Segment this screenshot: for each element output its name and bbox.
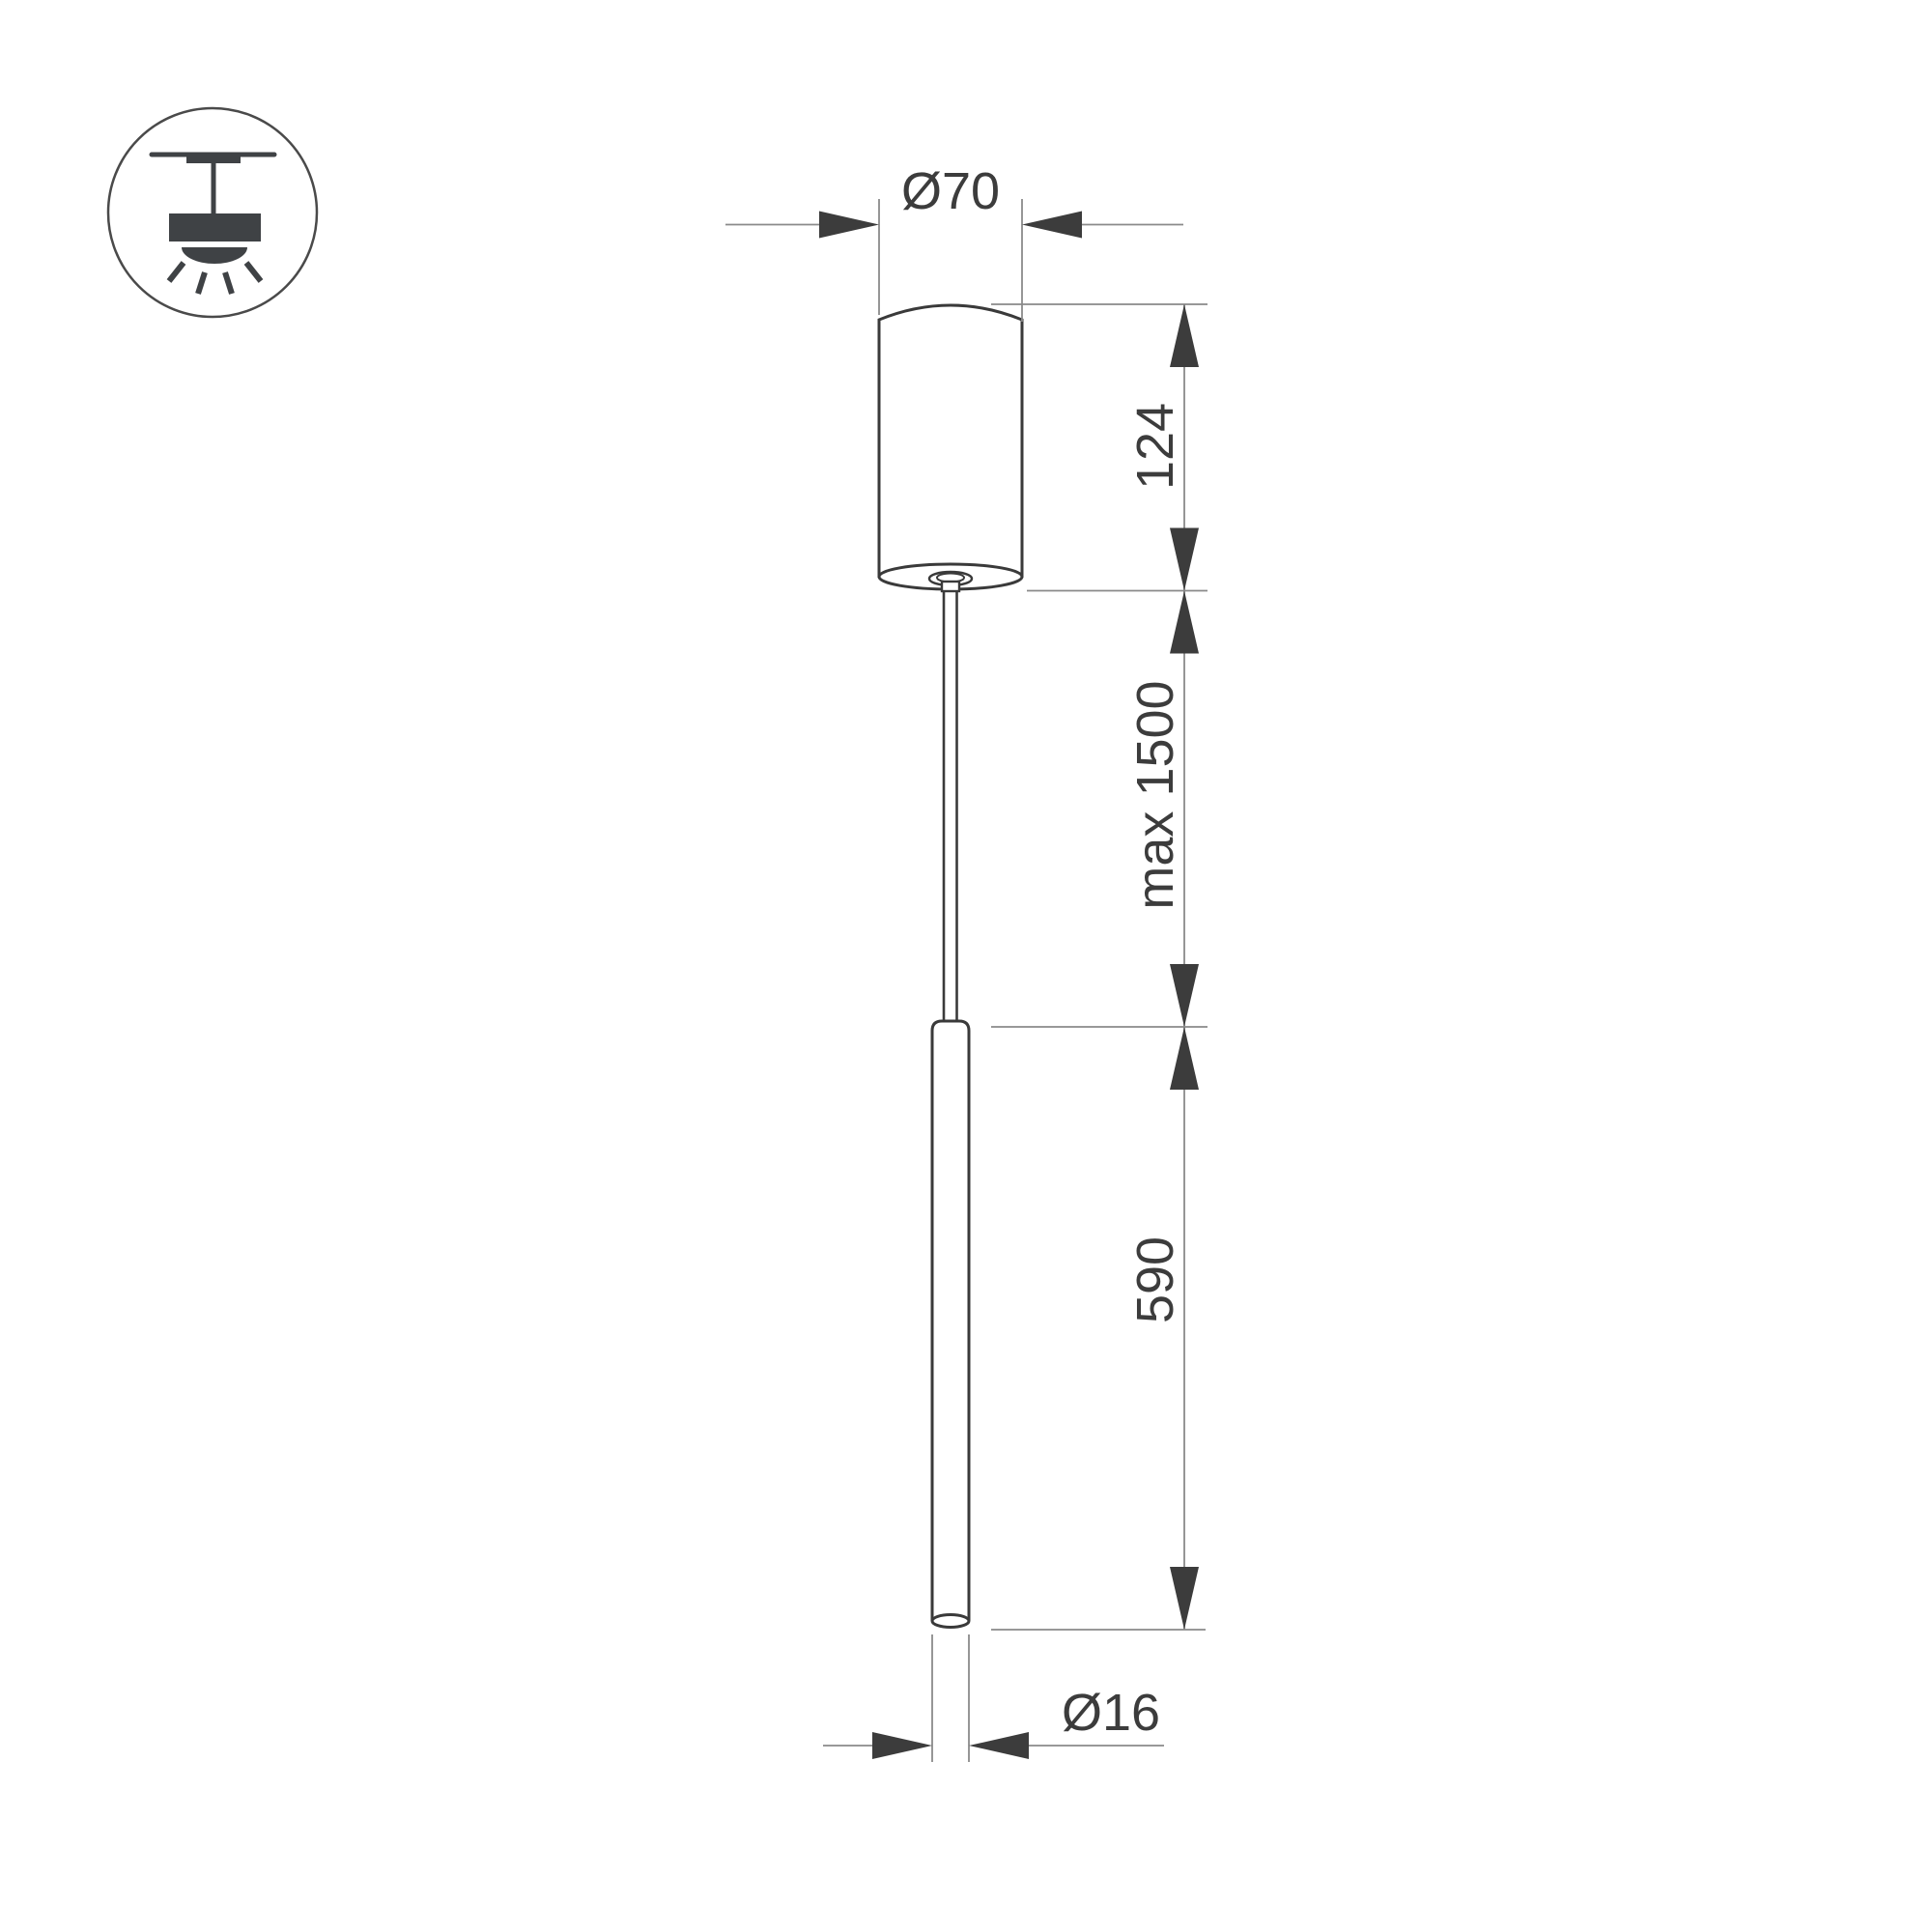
dim-suspension-length: max 1500 <box>1027 591 1207 1028</box>
tube-bottom-opening <box>932 1615 969 1628</box>
tube-diameter-label: Ø16 <box>1062 1684 1160 1742</box>
arrow-up-icon <box>1170 1027 1199 1090</box>
suspension-length-label: max 1500 <box>1126 680 1184 909</box>
canopy-body <box>879 305 1022 578</box>
cable-grommet-nipple <box>942 582 959 591</box>
ceiling-pendant-icon <box>108 108 317 317</box>
canopy <box>879 305 1022 591</box>
dim-canopy-diameter: Ø70 <box>725 162 1183 322</box>
arrow-down-icon <box>1170 1567 1199 1630</box>
canopy-height-label: 124 <box>1126 403 1184 490</box>
dim-canopy-height: 124 <box>991 304 1207 591</box>
arrow-down-icon <box>1170 528 1199 591</box>
arrow-left-icon <box>969 1732 1029 1759</box>
technical-drawing-page: Ø70 124 max 1500 590 Ø16 <box>0 0 1932 1932</box>
arrow-right-icon <box>819 212 879 239</box>
canopy-diameter-label: Ø70 <box>901 162 1000 220</box>
light-tube <box>932 1021 969 1628</box>
dim-tube-diameter: Ø16 <box>823 1634 1164 1762</box>
arrow-down-icon <box>1170 964 1199 1027</box>
tube-length-label: 590 <box>1126 1236 1184 1323</box>
arrow-up-icon <box>1170 304 1199 367</box>
pendant-lamp-dimension-drawing: Ø70 124 max 1500 590 Ø16 <box>0 0 1932 1932</box>
icon-lamp-body <box>169 213 261 241</box>
pendant-lamp-outline <box>879 305 1022 1628</box>
arrow-right-icon <box>872 1732 932 1759</box>
tube-body <box>932 1021 969 1621</box>
dim-tube-length: 590 <box>991 1027 1207 1630</box>
suspension-cable <box>944 591 957 1021</box>
arrow-up-icon <box>1170 591 1199 654</box>
arrow-left-icon <box>1022 212 1082 239</box>
